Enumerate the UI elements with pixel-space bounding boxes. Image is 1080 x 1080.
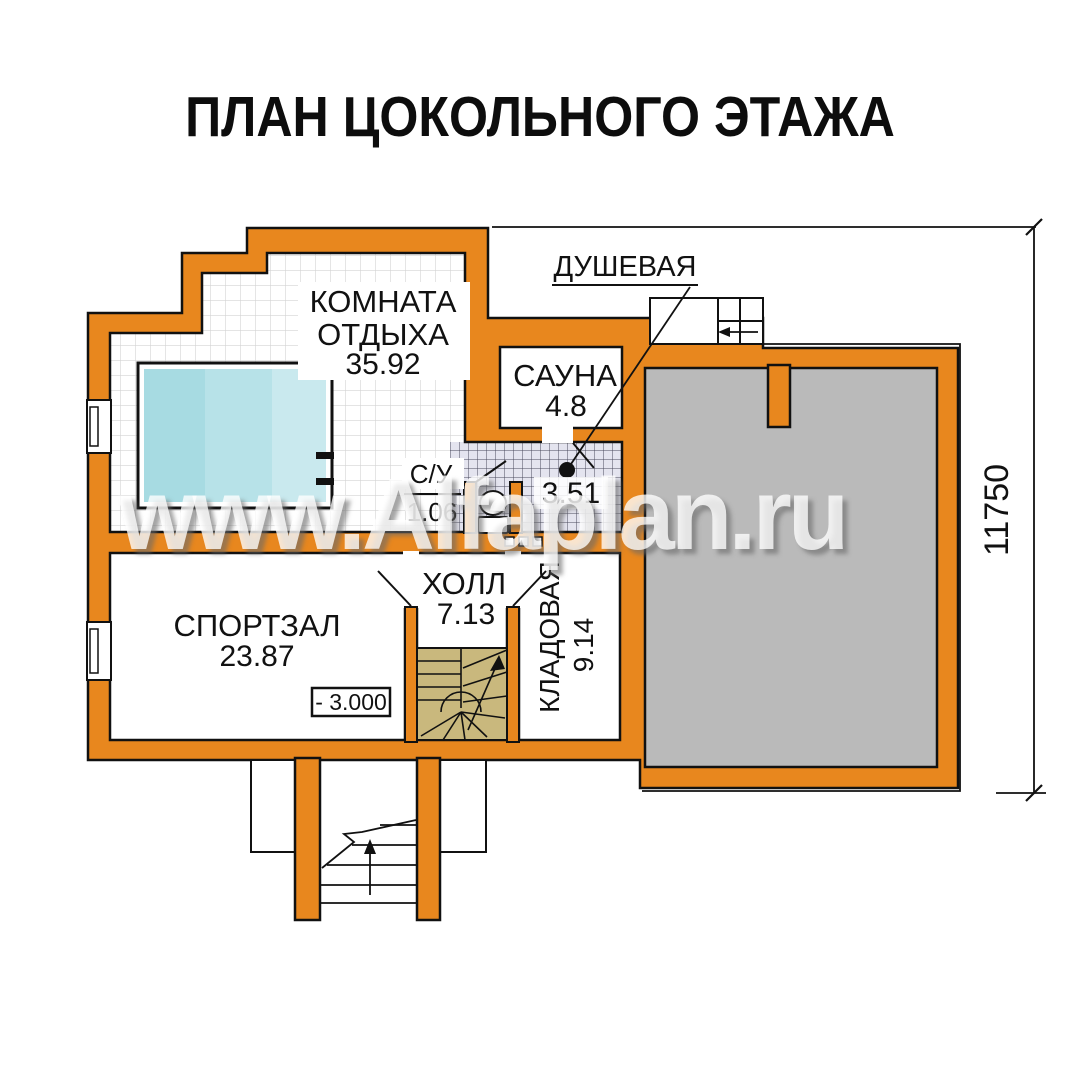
- rest-room-name-1: КОМНАТА: [310, 284, 457, 319]
- hall-wall-stub-left: [405, 607, 417, 742]
- elevation-mark: - 3.000: [312, 688, 390, 716]
- garage-wall-stub: [768, 365, 790, 427]
- floor-plan-page: ПЛАН ЦОКОЛЬНОГО ЭТАЖА: [0, 0, 1080, 1080]
- rest-room-area: 35.92: [345, 348, 420, 381]
- sauna-name: САУНА: [513, 358, 617, 393]
- gym-area: 23.87: [219, 640, 294, 673]
- exterior-staircase: [251, 758, 486, 920]
- shower-area: 3.51: [542, 477, 600, 510]
- toilet-bowl: [480, 491, 506, 515]
- swimming-pool: [138, 363, 334, 508]
- floor-plan-drawing: КОМНАТА ОТДЫХА 35.92 САУНА 4.8 ДУШЕВАЯ 3…: [0, 0, 1080, 1080]
- exterior-stair-arrow: [364, 839, 376, 854]
- sauna-area: 4.8: [545, 390, 587, 423]
- wc-name: С/У: [410, 459, 453, 489]
- pool-ladder: [316, 452, 334, 459]
- window-left-lower: [87, 622, 111, 680]
- gym-name: СПОРТЗАЛ: [173, 608, 340, 643]
- hall-area: 7.13: [437, 598, 495, 631]
- storage-name: КЛАДОВАЯ: [534, 561, 565, 713]
- toilet-tank: [478, 517, 508, 533]
- storage-area: 9.14: [568, 618, 599, 673]
- elevation-value: - 3.000: [315, 689, 387, 715]
- shower-name: ДУШЕВАЯ: [554, 251, 697, 283]
- wc-area: 1.06: [407, 497, 458, 527]
- hall-name: ХОЛЛ: [422, 566, 506, 601]
- window-left-upper: [87, 400, 111, 453]
- dimension-right-value: 11750: [978, 464, 1016, 556]
- interior-staircase: [417, 648, 507, 740]
- hall-wall-stub-right: [507, 607, 519, 742]
- shower-leader-dot: [559, 462, 575, 478]
- garage-room: [642, 344, 960, 791]
- rest-room-name-2: ОТДЫХА: [317, 317, 449, 352]
- wall-vent-squares: [505, 537, 542, 546]
